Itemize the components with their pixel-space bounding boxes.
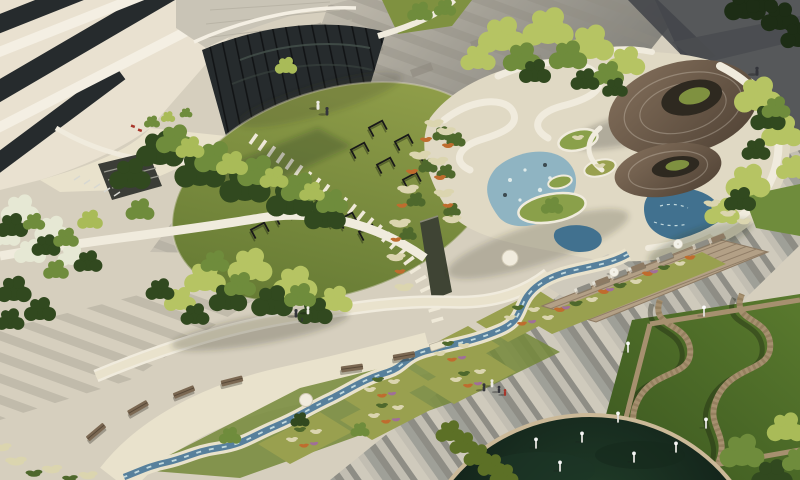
aerial-rendering: [0, 0, 800, 480]
shrub-tuft: [746, 0, 778, 13]
round-stone-table: [502, 250, 518, 266]
scene-canvas: [0, 0, 800, 480]
pool-reflection: [595, 441, 685, 469]
round-stone-table: [300, 394, 313, 407]
